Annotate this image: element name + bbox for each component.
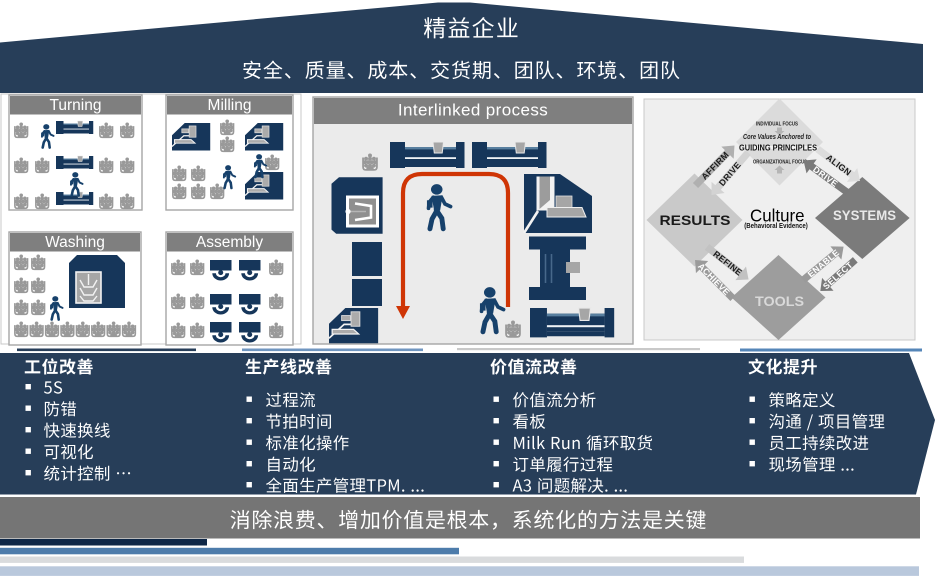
svg-text:(Behavioral Evidence): (Behavioral Evidence): [744, 223, 808, 230]
svg-text:Interlinked process: Interlinked process: [398, 101, 548, 120]
svg-text:TOOLS: TOOLS: [755, 294, 804, 309]
svg-text:Milling: Milling: [208, 97, 252, 114]
svg-text:Turning: Turning: [50, 97, 102, 114]
svg-text:Core Values Anchored to: Core Values Anchored to: [743, 134, 812, 141]
svg-text:Assembly: Assembly: [196, 234, 263, 251]
svg-text:GUIDING PRINCIPLES: GUIDING PRINCIPLES: [739, 143, 817, 153]
svg-text:ORGANIZATIONAL FOCUS: ORGANIZATIONAL FOCUS: [753, 160, 808, 166]
svg-text:Washing: Washing: [45, 234, 105, 251]
svg-text:SYSTEMS: SYSTEMS: [833, 208, 896, 223]
svg-text:RESULTS: RESULTS: [660, 212, 731, 228]
svg-text:INDIVIDUAL FOCUS: INDIVIDUAL FOCUS: [756, 122, 799, 128]
